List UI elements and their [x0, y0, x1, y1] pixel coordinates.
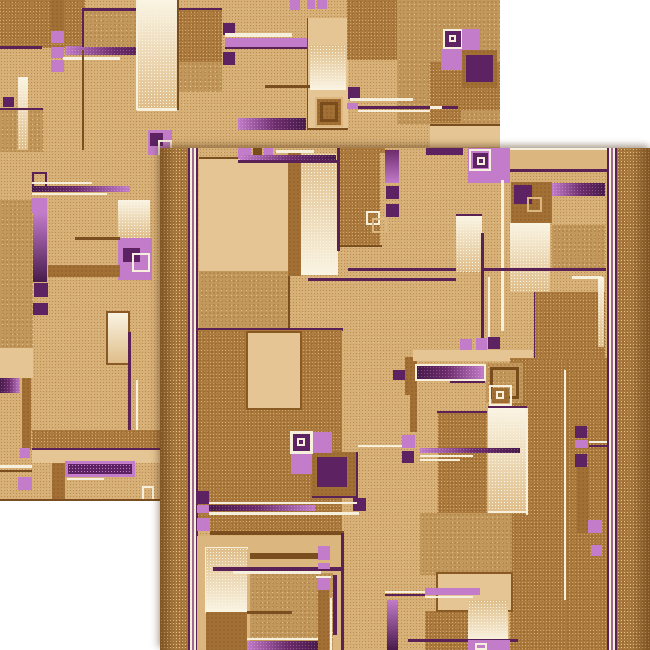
pattern-sp1 — [32, 430, 160, 449]
pattern-bln — [0, 470, 32, 472]
pattern-brn — [22, 378, 31, 450]
pattern-crmv — [456, 216, 482, 272]
pattern-wln — [225, 33, 292, 37]
pattern-sp1 — [425, 611, 468, 650]
pattern-pgr — [238, 118, 306, 130]
pattern-pur — [575, 426, 587, 438]
pattern-pur — [402, 451, 414, 463]
pattern-wln — [501, 180, 504, 331]
pattern-tan — [510, 150, 607, 169]
pattern-wln — [233, 571, 321, 574]
pattern-pur — [223, 52, 235, 65]
pattern-pln — [385, 594, 425, 596]
pattern-wln — [385, 591, 425, 593]
pattern-pur — [353, 498, 366, 511]
pattern-lil — [197, 518, 210, 531]
pattern-sp2 — [0, 200, 33, 348]
pattern-wfr2 — [475, 643, 487, 650]
pattern-sp2 — [552, 225, 605, 268]
pattern-pln — [0, 108, 43, 110]
pattern-wln — [32, 193, 107, 195]
pattern-sp1 — [430, 110, 461, 123]
pattern-wln — [425, 596, 473, 598]
pattern-wln — [430, 106, 442, 109]
pattern-pln — [356, 452, 358, 498]
pattern-wln — [67, 478, 104, 480]
pattern-lil — [20, 448, 30, 458]
pattern-crmv — [598, 277, 604, 347]
pattern-lil — [317, 578, 330, 590]
pattern-pgv — [385, 150, 399, 183]
pattern-pur — [386, 204, 399, 217]
pattern-lgv — [33, 213, 47, 282]
pattern-wln — [276, 150, 314, 153]
pattern-sp1 — [179, 10, 222, 62]
pattern-lil — [425, 588, 480, 595]
pattern-brn — [318, 590, 329, 650]
pattern-wln — [330, 598, 332, 650]
pattern-lil — [51, 31, 64, 43]
pattern-wln — [137, 108, 177, 111]
pattern-dfr — [320, 102, 338, 122]
pattern-pur — [488, 337, 500, 349]
pattern-brn — [48, 265, 120, 277]
pattern-crmv2 — [468, 600, 508, 642]
pattern-sp1 — [347, 0, 397, 60]
pattern-pur — [386, 186, 399, 199]
pattern-lil — [318, 546, 330, 560]
pattern-lil — [32, 198, 47, 213]
pattern-lil — [291, 453, 312, 474]
pattern-pbar — [65, 461, 135, 477]
pattern-wfs — [449, 35, 456, 42]
pattern-lil — [318, 563, 330, 569]
pattern-lil — [347, 103, 358, 109]
pattern-sp1 — [0, 0, 85, 48]
pattern-pln — [333, 575, 337, 635]
pattern-wln — [488, 511, 528, 513]
pattern-crmv — [510, 223, 550, 292]
pattern-wln — [526, 408, 528, 515]
pattern-pln — [589, 445, 607, 447]
pattern-lil — [462, 29, 480, 50]
pattern-pgl — [417, 366, 484, 379]
pattern-wln — [0, 465, 32, 468]
pattern-bln — [340, 245, 382, 247]
pattern-pur — [317, 457, 347, 487]
pattern-lil — [307, 0, 315, 9]
pattern-crmv — [488, 408, 527, 513]
pattern-wln — [564, 370, 566, 600]
pattern-lil — [290, 0, 300, 10]
pattern-pln — [358, 106, 458, 109]
pattern-wln — [32, 182, 92, 184]
pattern-wln — [136, 380, 138, 430]
pattern-brn — [51, 0, 64, 30]
front-rug-image — [160, 148, 650, 650]
pattern-pur — [33, 303, 48, 315]
pattern-lil — [402, 435, 415, 448]
pattern-lil — [441, 49, 462, 70]
pattern-ltn — [430, 126, 500, 147]
pattern-wln — [358, 110, 438, 112]
pattern-lil — [51, 60, 64, 72]
pattern-lil — [476, 338, 487, 350]
pattern-pln — [0, 46, 42, 49]
pattern-pgl — [209, 505, 315, 511]
pattern-pgr — [420, 448, 520, 453]
pattern-pln — [481, 233, 484, 342]
pattern-pnl — [246, 331, 302, 410]
pattern-pln — [312, 496, 358, 498]
rug-product-photo — [0, 0, 650, 650]
pattern-wfs — [477, 157, 485, 165]
pattern-crmv — [18, 77, 28, 150]
pattern-pur — [466, 55, 493, 82]
pattern-lil — [313, 432, 332, 453]
pattern-pgr — [552, 183, 605, 196]
pattern-pur — [426, 148, 463, 155]
pattern-pln — [238, 160, 340, 163]
pattern-brn — [52, 463, 65, 501]
pattern-brn — [410, 385, 417, 432]
pattern-lil — [317, 0, 327, 9]
pattern-sp1 — [438, 413, 487, 513]
pattern-ltn — [0, 348, 33, 378]
pattern-bln — [265, 85, 310, 88]
pattern-bdr — [617, 148, 650, 650]
pattern-pln — [128, 332, 131, 430]
pattern-sp2 — [84, 11, 138, 47]
pattern-pgl — [0, 378, 20, 393]
pattern-pur — [196, 491, 209, 504]
pattern-lgv — [387, 600, 398, 650]
pattern-brn — [577, 467, 588, 533]
pattern-bln — [75, 237, 120, 240]
pattern-wfs — [496, 391, 504, 399]
pattern-wln — [589, 441, 607, 443]
pattern-pur — [34, 283, 48, 297]
pattern-bln — [250, 553, 326, 559]
pattern-wln — [350, 98, 413, 101]
pattern-bln — [247, 611, 292, 614]
pattern-wfs — [297, 438, 305, 446]
pattern-sp2 — [199, 271, 288, 329]
pattern-pgl — [32, 186, 130, 192]
pattern-pnl2 — [106, 311, 130, 365]
pattern-ltn — [199, 159, 288, 271]
pattern-crmv2 — [206, 548, 247, 612]
pattern-pur — [3, 97, 14, 107]
pattern-crmv2 — [301, 153, 338, 275]
pattern-pln — [450, 381, 485, 383]
pattern-wln — [358, 445, 402, 447]
pattern-lil — [575, 440, 588, 448]
pattern-sp2 — [178, 62, 222, 92]
pattern-lil — [591, 545, 602, 556]
pattern-crmv — [118, 200, 150, 238]
pattern-wln — [420, 459, 460, 461]
pattern-wln — [209, 512, 359, 515]
pattern-bdl — [160, 148, 188, 650]
pattern-crmv2 — [310, 45, 346, 90]
pattern-tfr — [527, 197, 542, 212]
pattern-lil — [588, 520, 602, 533]
pattern-pln — [510, 169, 607, 172]
pattern-brn — [288, 152, 301, 276]
pattern-bln — [82, 50, 84, 150]
pattern-sp1 — [535, 292, 605, 358]
pattern-wfr2 — [132, 253, 150, 272]
pattern-lil — [460, 339, 472, 350]
pattern-lil — [197, 505, 209, 513]
pattern-wln — [209, 502, 357, 504]
pattern-bln — [308, 128, 348, 130]
pattern-pur — [575, 454, 587, 467]
pattern-pln — [308, 278, 456, 281]
pattern-bln — [210, 531, 344, 535]
pattern-crmv — [138, 0, 177, 108]
pattern-pgr — [247, 641, 318, 650]
pattern-wln — [247, 638, 318, 640]
pattern-wln — [420, 455, 473, 457]
pattern-lil — [18, 477, 32, 490]
pattern-tfr — [372, 218, 387, 233]
pattern-brn — [206, 612, 247, 650]
pattern-pln — [341, 533, 344, 650]
pattern-wln — [63, 57, 120, 60]
pattern-sp2 — [420, 513, 512, 575]
